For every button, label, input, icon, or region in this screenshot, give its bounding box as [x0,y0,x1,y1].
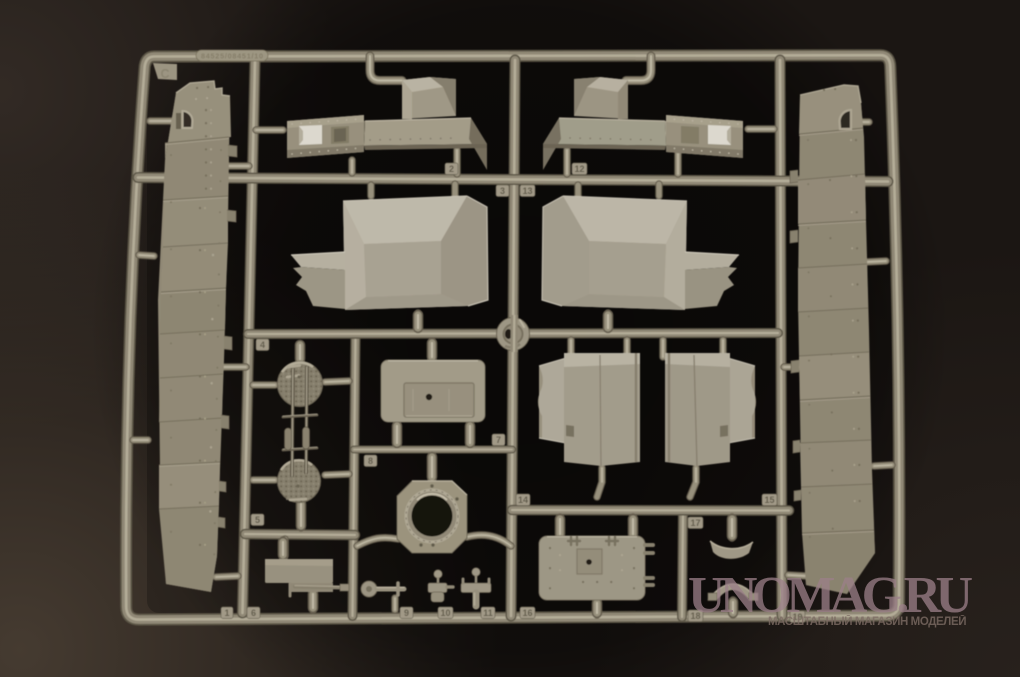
svg-text:17: 17 [690,518,700,528]
svg-text:4: 4 [260,340,265,350]
svg-text:16: 16 [522,608,532,618]
svg-text:14: 14 [518,495,528,505]
svg-text:84525/08451/10: 84525/08451/10 [201,52,263,61]
svg-text:5: 5 [255,515,260,525]
svg-text:3: 3 [500,186,505,196]
svg-text:12: 12 [574,164,584,174]
svg-text:1: 1 [224,608,229,618]
svg-text:10: 10 [440,608,450,618]
svg-text:C: C [160,67,169,81]
svg-text:15: 15 [764,495,774,505]
svg-text:2: 2 [449,164,454,174]
svg-text:11: 11 [483,608,493,618]
svg-text:9: 9 [404,608,409,618]
svg-text:7: 7 [496,435,501,445]
svg-text:6: 6 [251,608,256,618]
svg-text:13: 13 [522,186,532,196]
svg-text:8: 8 [368,456,373,466]
svg-text:МАСШТАБНЫЙ МАГАЗИН МОДЕЛЕЙ: МАСШТАБНЫЙ МАГАЗИН МОДЕЛЕЙ [768,615,968,628]
